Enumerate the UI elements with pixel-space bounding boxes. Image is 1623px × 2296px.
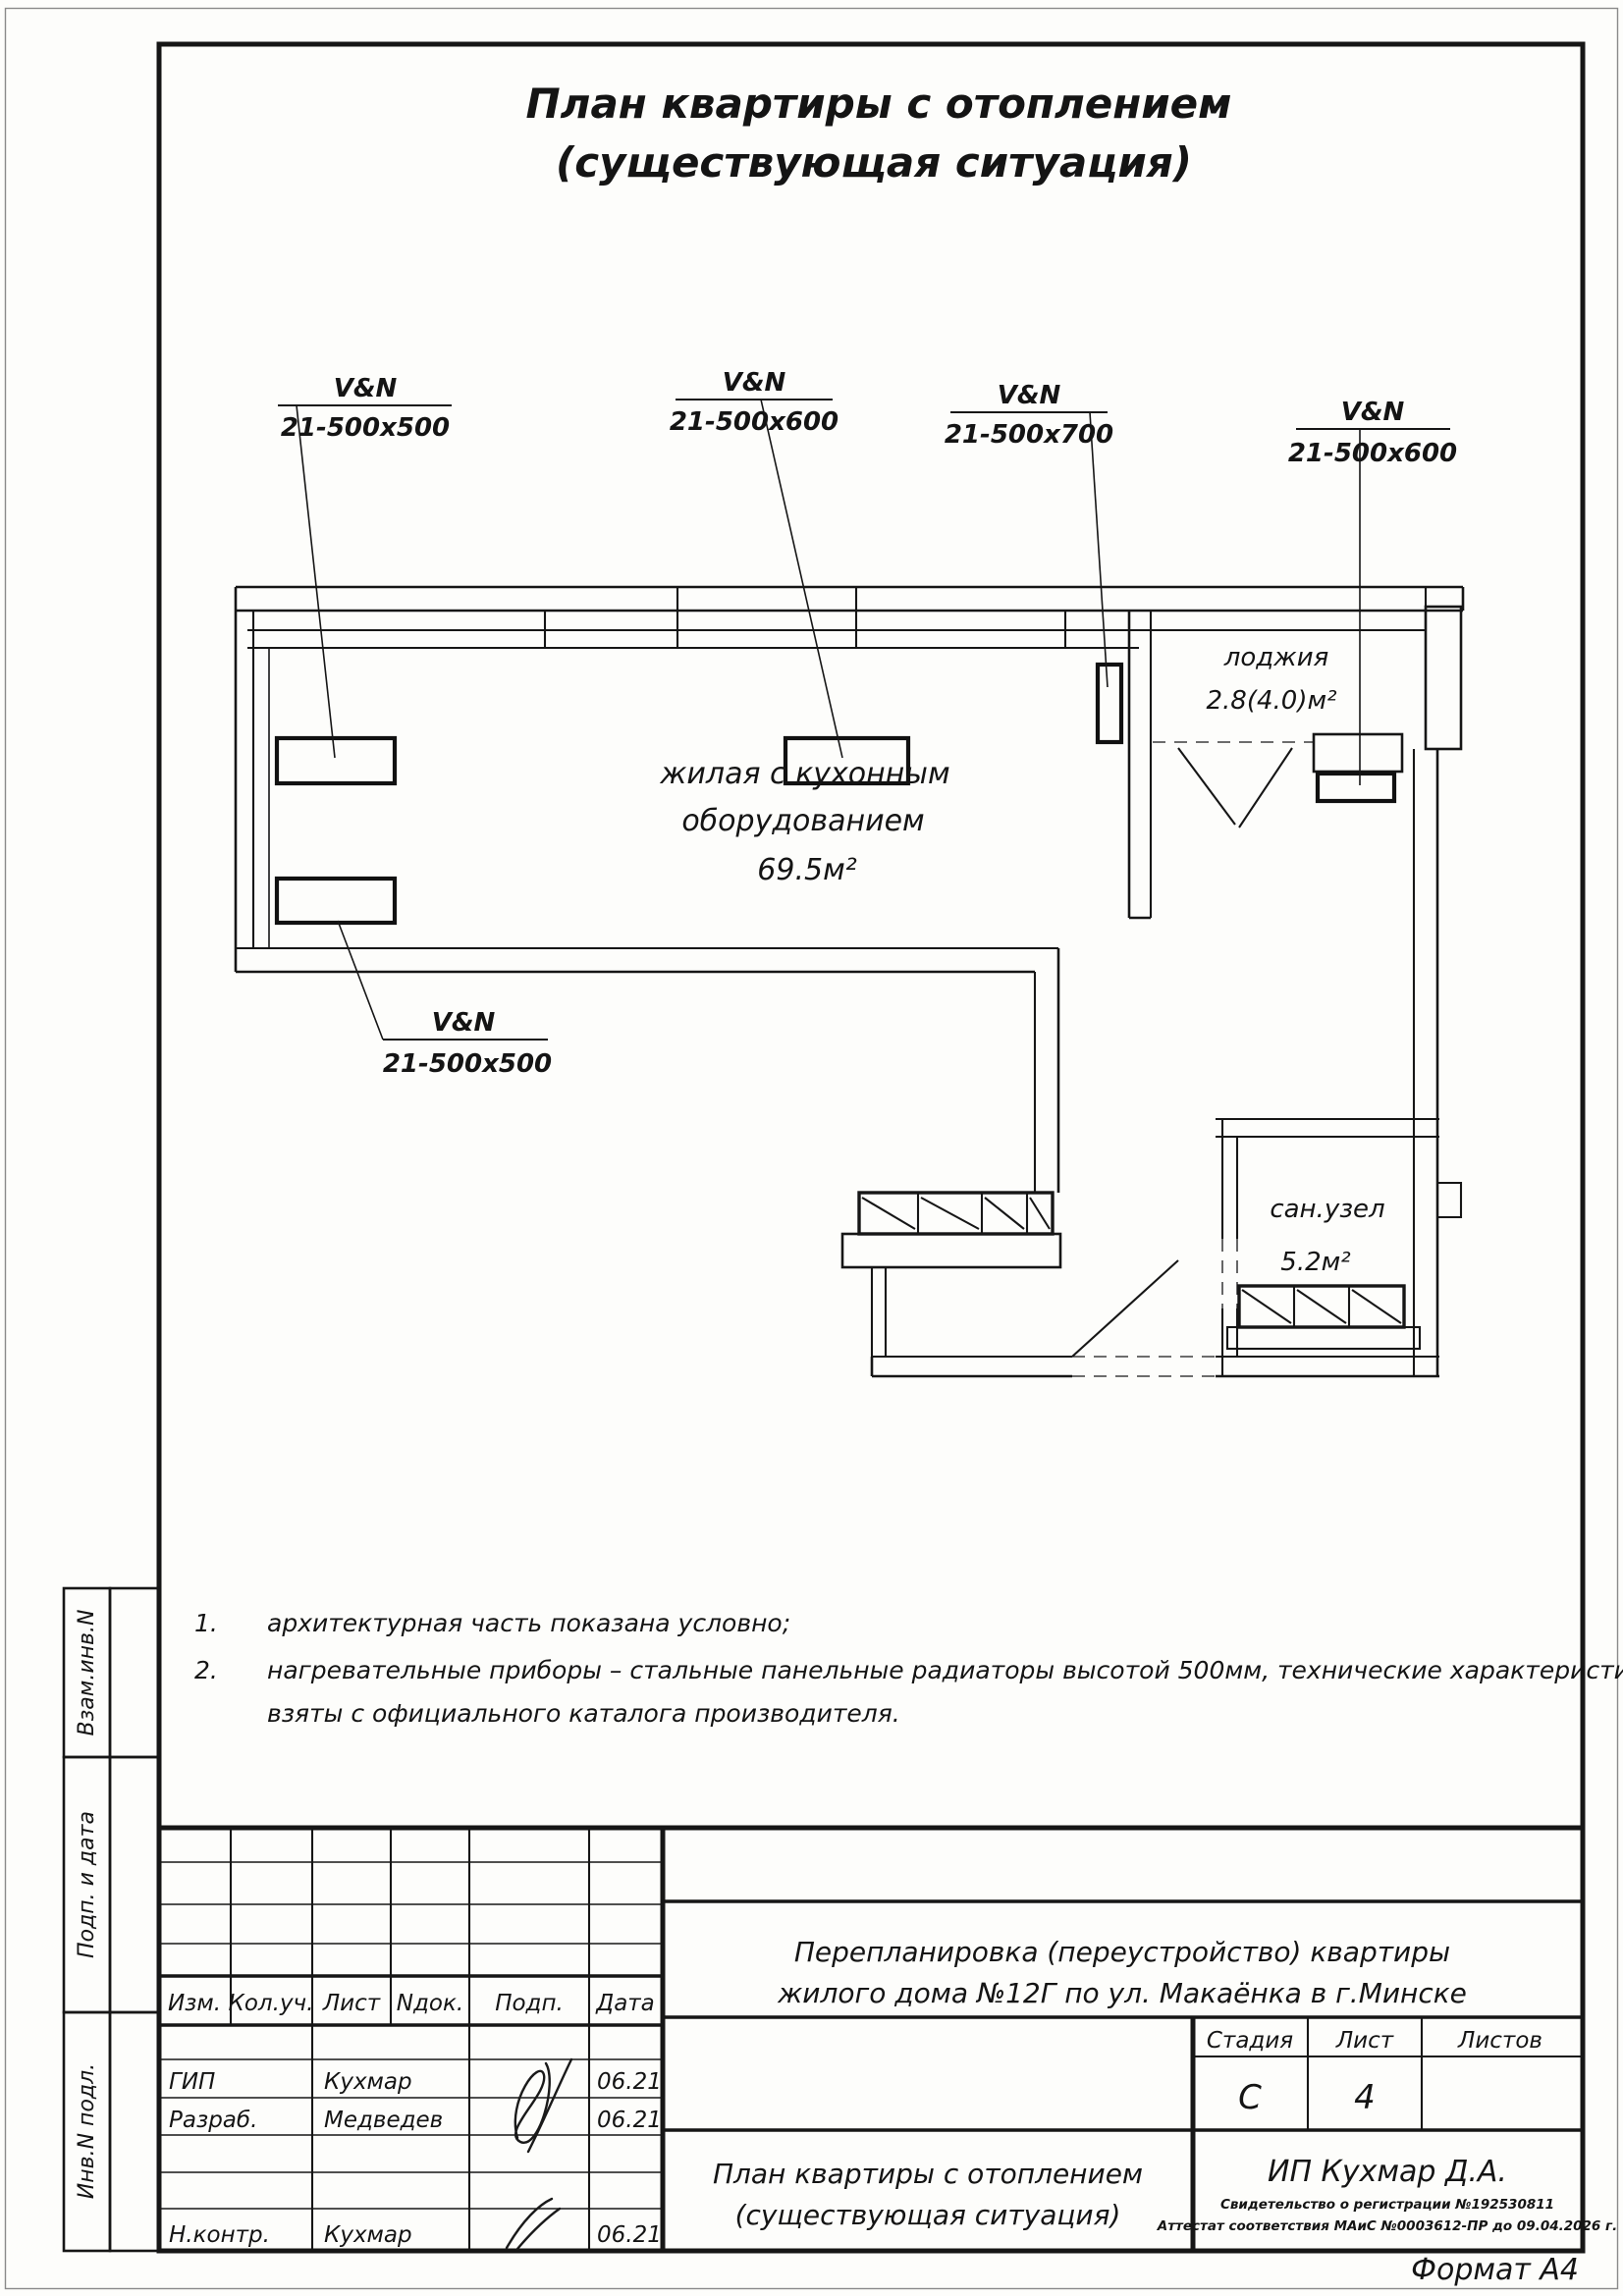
- sheet-header: Лист: [1335, 2028, 1394, 2054]
- row-razrab-name: Медведев: [324, 2108, 443, 2133]
- radiator-label-4-model: V&N: [1341, 398, 1405, 427]
- project-name-line2: жилого дома №12Г по ул. Макаёнка в г.Мин…: [777, 1977, 1467, 2009]
- sidebar-label-inv: Инв.N подл.: [75, 2063, 99, 2199]
- sheet-value: 4: [1354, 2078, 1376, 2117]
- sidebar-label-vzam: Взам.инв.N: [75, 1610, 99, 1736]
- room-living-area: 69.5м²: [757, 853, 856, 887]
- row-razrab-date: 06.21: [597, 2108, 662, 2133]
- radiator-1: [277, 738, 395, 783]
- note-2-text-line1: нагревательные приборы – стальные панель…: [267, 1656, 1623, 1684]
- sheets-header: Листов: [1457, 2028, 1542, 2054]
- radiator-3: [1098, 665, 1121, 742]
- doc-title-line2: (существующая ситуация): [735, 2199, 1121, 2231]
- row-gip-name: Кухмар: [324, 2069, 412, 2095]
- org-cert-line2: Аттестат соответствия МАиС №0003612-ПР д…: [1157, 2218, 1617, 2234]
- radiator-5: [277, 879, 395, 923]
- row-razrab-role: Разраб.: [169, 2108, 257, 2133]
- radiator-label-1-model: V&N: [334, 374, 398, 403]
- organization-name: ИП Кухмар Д.А.: [1268, 2155, 1507, 2189]
- header-izm: Изм.: [168, 1991, 221, 2016]
- note-1-number: 1.: [194, 1609, 218, 1637]
- doc-title-line1: План квартиры с отоплением: [713, 2158, 1143, 2190]
- drawing-sheet: План квартиры с отоплением (существующая…: [0, 0, 1623, 2296]
- row-gip-date: 06.21: [597, 2069, 662, 2095]
- room-bathroom-name: сан.узел: [1270, 1195, 1384, 1224]
- radiator-label-3-size: 21-500x700: [945, 420, 1113, 450]
- room-loggia-area: 2.8(4.0)м²: [1206, 686, 1336, 716]
- radiator-label-3-model: V&N: [998, 381, 1061, 410]
- sidebar-label-podp: Подп. и дата: [75, 1811, 99, 1958]
- radiator-label-2-model: V&N: [723, 368, 786, 398]
- note-2-text-line2: взяты с официального каталога производит…: [267, 1699, 900, 1728]
- row-gip-role: ГИП: [169, 2069, 215, 2095]
- room-living-name-line1: жилая с кухонным: [659, 757, 949, 791]
- header-podp: Подп.: [495, 1991, 564, 2016]
- radiator-label-4-size: 21-500x600: [1288, 439, 1457, 468]
- sheet-title-line2: (существующая ситуация): [556, 138, 1192, 187]
- radiator-label-5-model: V&N: [432, 1008, 496, 1038]
- radiator-label-2-size: 21-500x600: [670, 407, 839, 437]
- note-1-text: архитектурная часть показана условно;: [267, 1609, 790, 1637]
- radiator-label-1-size: 21-500x500: [281, 413, 450, 443]
- drawing-canvas: План квартиры с отоплением (существующая…: [0, 0, 1623, 2296]
- room-living-name-line2: оборудованием: [681, 804, 924, 838]
- org-cert-line1: Свидетельство о регистрации №192530811: [1220, 2197, 1554, 2213]
- room-loggia-name: лоджия: [1223, 643, 1328, 672]
- row-nkontr-name: Кухмар: [324, 2222, 412, 2248]
- header-koluch: Кол.уч.: [229, 1991, 314, 2016]
- row-nkontr-role: Н.контр.: [169, 2222, 270, 2248]
- project-name-line1: Перепланировка (переустройство) квартиры: [794, 1936, 1450, 1968]
- header-list: Лист: [322, 1991, 381, 2016]
- radiator-label-5-size: 21-500x500: [383, 1049, 552, 1079]
- row-nkontr-date: 06.21: [597, 2222, 662, 2248]
- stage-header: Стадия: [1207, 2028, 1293, 2054]
- header-data: Дата: [595, 1991, 655, 2016]
- header-ndok: Nдок.: [397, 1991, 463, 2016]
- format-label: Формат А4: [1411, 2253, 1579, 2287]
- sheet-title-line1: План квартиры с отоплением: [526, 80, 1232, 128]
- room-bathroom-area: 5.2м²: [1280, 1248, 1350, 1277]
- radiator-4: [1318, 774, 1394, 801]
- stage-value: С: [1238, 2078, 1262, 2117]
- note-2-number: 2.: [194, 1656, 218, 1684]
